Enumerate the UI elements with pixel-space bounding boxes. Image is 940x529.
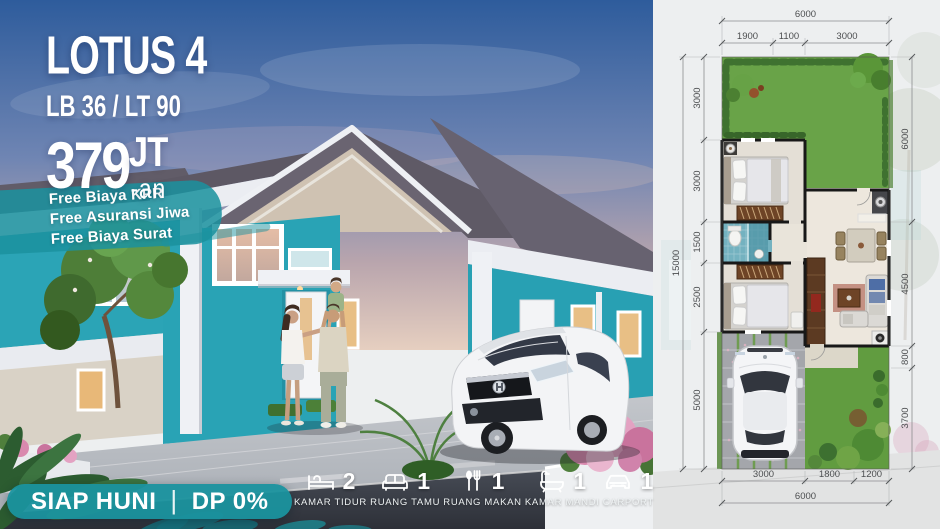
property-ad-poster: LOTUS 4 LB 36 / LT 90 379JT -an Free Bia… [0,0,940,529]
cutlery-icon [461,469,485,493]
status-badge: SIAP HUNI | DP 0% [7,484,292,519]
dim-right-seg4: 3700 [900,407,911,428]
entry-step [858,214,886,222]
feature-label: CARPORT [603,497,654,508]
floor-plan: 6000 1900 1100 3000 15000 3000 3000 1500… [653,0,940,529]
feature-count: 1 [492,470,505,493]
feature-label: KAMAR MANDI [525,497,600,508]
price-suffix: -an [130,175,166,203]
dim-left-seg1: 3000 [692,87,703,108]
dim-left-total: 15000 [671,250,682,276]
feature-dining-room: 1 RUANG MAKAN [443,468,521,508]
dim-bottom-total: 6000 [795,491,816,502]
price-unit: JT [129,128,168,175]
feature-living-room: 1 RUANG TAMU [370,468,440,508]
sofa-icon [380,470,410,492]
car-top-view [727,346,803,460]
dim-right-seg2: 4500 [900,273,911,294]
dim-right-seg1: 6000 [900,128,911,149]
feature-label: RUANG TAMU [370,497,440,508]
feature-count: 1 [573,470,586,493]
dim-bottom-seg2: 1800 [819,469,840,480]
dim-left-seg2: 3000 [692,170,703,191]
feature-count: 1 [417,470,430,493]
left-house-lit-window [78,370,104,410]
badge-ready-label: SIAP HUNI [31,488,156,516]
feature-label: KAMAR TIDUR [294,497,367,508]
feature-count: 2 [343,470,356,493]
terrace [805,346,858,368]
bed-icon [306,470,336,492]
price: 379JT -an [46,131,206,198]
feature-bedrooms: 2 KAMAR TIDUR [294,468,367,508]
dim-left-seg4: 2500 [692,286,703,307]
feature-bathroom: 1 KAMAR MANDI [525,468,600,508]
dim-top-seg1: 1900 [737,31,758,42]
page-title: LOTUS 4 [46,30,206,84]
dim-top-seg3: 3000 [836,31,857,42]
dim-top-total: 6000 [795,9,816,20]
dim-right-seg3: 800 [900,349,911,365]
dim-bottom-seg3: 1200 [861,469,882,480]
price-number: 379 [46,128,129,202]
feature-list: 2 KAMAR TIDUR 1 RUANG TAMU [294,468,654,508]
shower-drain [755,250,764,259]
hallway [770,222,805,263]
badge-separator: | [170,485,177,516]
feature-label: RUANG MAKAN [443,497,521,508]
dim-left-seg3: 1500 [692,231,703,252]
badge-dp-label: DP 0% [192,488,269,516]
dim-top-seg2: 1100 [779,31,799,42]
bathtub-icon [538,469,566,493]
floor-plan-panel: 6000 1900 1100 3000 15000 3000 3000 1500… [653,0,940,529]
feature-count: 1 [640,470,653,493]
toilet [729,230,741,246]
promo-text-block: LOTUS 4 LB 36 / LT 90 379JT -an [46,30,206,198]
dim-bottom-seg1: 3000 [753,469,774,480]
dim-left-seg5: 5000 [692,389,703,410]
car-icon [603,470,633,492]
feature-carport: 1 CARPORT [603,468,654,508]
building-land-spec: LB 36 / LT 90 [46,92,206,122]
